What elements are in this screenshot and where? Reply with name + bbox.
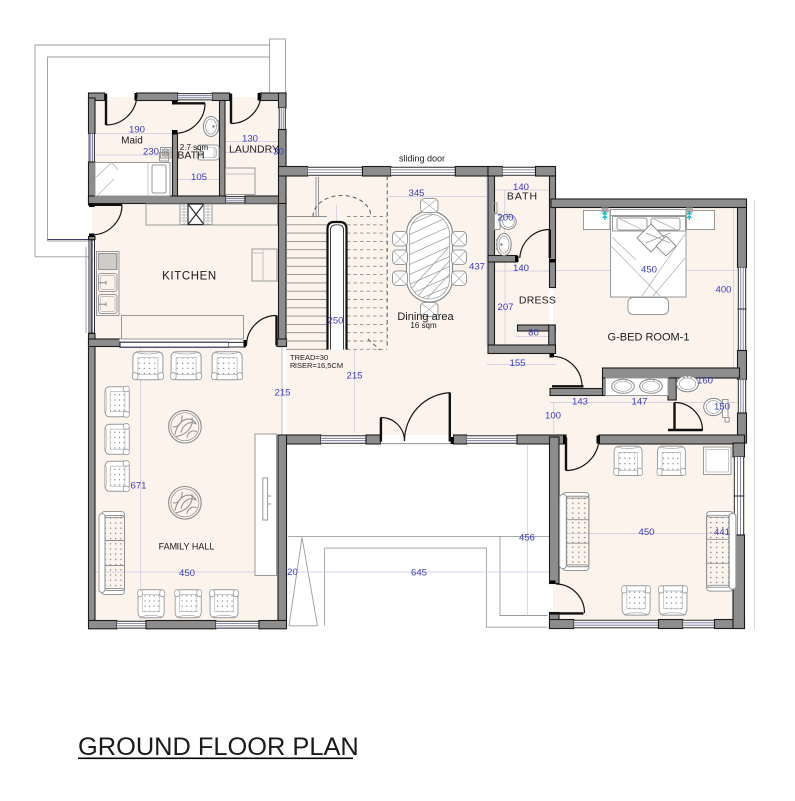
svg-text:345: 345 [408,188,424,199]
svg-text:250: 250 [327,316,343,327]
svg-text:DRESS: DRESS [519,295,556,307]
svg-text:207: 207 [497,302,513,313]
svg-text:143: 143 [572,397,588,408]
svg-text:450: 450 [638,527,654,538]
svg-text:155: 155 [509,358,525,369]
svg-text:441: 441 [714,527,730,538]
svg-text:KITCHEN: KITCHEN [162,271,217,283]
svg-text:200: 200 [497,213,513,224]
svg-text:16 sqm: 16 sqm [410,321,437,330]
svg-text:400: 400 [715,285,731,296]
svg-text:30: 30 [273,147,284,158]
svg-text:130: 130 [242,134,258,145]
svg-text:671: 671 [130,481,146,492]
svg-text:140: 140 [513,263,529,274]
svg-text:G-BED ROOM-1: G-BED ROOM-1 [608,332,690,344]
svg-text:160: 160 [697,376,713,387]
svg-text:20: 20 [287,567,298,578]
svg-text:215: 215 [274,388,290,399]
svg-text:215: 215 [346,371,362,382]
svg-text:150: 150 [714,402,730,413]
svg-text:FAMILY HALL: FAMILY HALL [159,542,215,552]
svg-text:437: 437 [469,262,485,273]
svg-text:RISER=16,5CM: RISER=16,5CM [290,361,343,370]
svg-text:GROUND FLOOR PLAN: GROUND FLOOR PLAN [78,733,359,761]
svg-text:BATH: BATH [177,150,204,162]
svg-text:105: 105 [191,172,207,183]
svg-text:230: 230 [143,147,159,158]
svg-text:100: 100 [545,411,561,422]
svg-text:sliding door: sliding door [399,154,445,164]
svg-text:147: 147 [631,397,647,408]
svg-text:140: 140 [513,182,529,193]
svg-text:450: 450 [641,265,657,276]
svg-text:450: 450 [179,568,195,579]
svg-text:Maid: Maid [121,136,143,147]
svg-text:LAUNDRY: LAUNDRY [229,144,279,156]
svg-text:645: 645 [411,568,427,579]
svg-text:80: 80 [528,328,539,339]
svg-text:456: 456 [519,533,535,544]
svg-text:190: 190 [129,125,145,136]
